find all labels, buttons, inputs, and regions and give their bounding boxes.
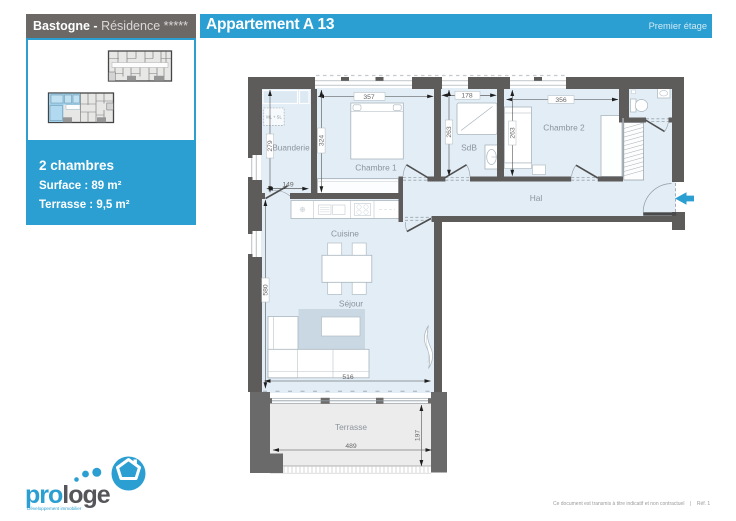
svg-text:Cuisine: Cuisine <box>331 229 359 239</box>
svg-text:324: 324 <box>319 135 326 147</box>
svg-text:prologe: prologe <box>25 481 111 509</box>
svg-text:Chambre 2: Chambre 2 <box>543 123 585 133</box>
svg-text:Hal: Hal <box>530 193 543 203</box>
svg-text:Développement immobilier: Développement immobilier <box>27 506 82 511</box>
svg-text:580: 580 <box>263 284 270 296</box>
svg-text:Terrasse: Terrasse <box>335 422 367 432</box>
svg-text:Buanderie: Buanderie <box>272 144 310 153</box>
svg-text:489: 489 <box>345 443 357 450</box>
svg-text:516: 516 <box>342 374 354 381</box>
svg-text:149: 149 <box>282 182 294 189</box>
svg-text:SdB: SdB <box>461 143 477 153</box>
svg-text:263: 263 <box>446 126 453 138</box>
svg-text:197: 197 <box>414 430 421 442</box>
svg-text:Séjour: Séjour <box>339 299 363 309</box>
svg-text:263: 263 <box>509 127 516 139</box>
svg-text:356: 356 <box>555 97 567 104</box>
svg-text:357: 357 <box>363 94 375 101</box>
svg-text:178: 178 <box>461 93 473 100</box>
svg-text:Chambre 1: Chambre 1 <box>355 163 397 173</box>
svg-text:ML + SL: ML + SL <box>266 115 282 120</box>
